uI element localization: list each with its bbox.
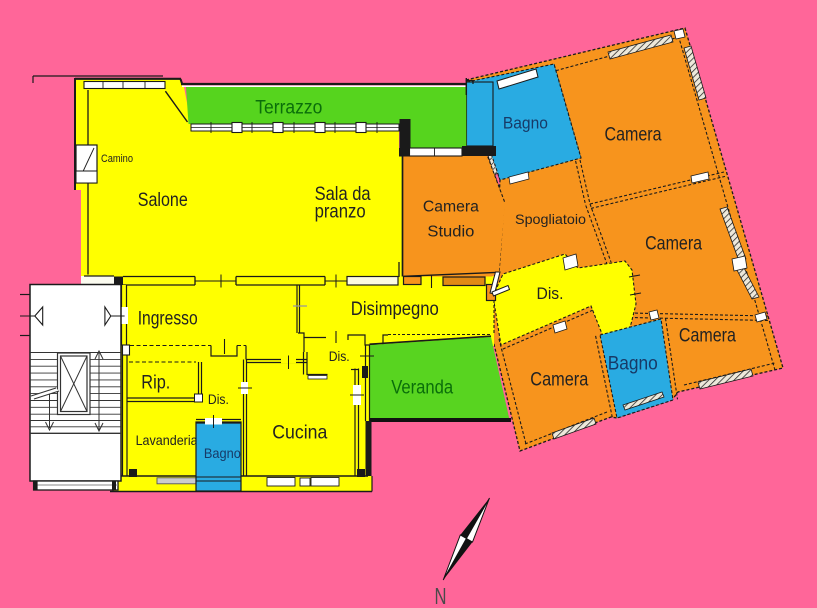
svg-text:Camera: Camera [605,125,662,146]
svg-text:Terrazzo: Terrazzo [255,97,322,119]
svg-text:Bagno: Bagno [503,115,548,133]
svg-text:Camera: Camera [530,370,588,391]
svg-text:Dis.: Dis. [208,392,229,407]
svg-text:Ingresso: Ingresso [138,309,198,330]
svg-text:Bagno: Bagno [204,445,241,461]
svg-text:Camera: Camera [645,234,702,255]
svg-text:Dis.: Dis. [329,349,350,364]
svg-text:Camera: Camera [679,326,736,347]
svg-text:Salone: Salone [138,190,188,211]
svg-text:Camera: Camera [423,199,479,216]
svg-text:N: N [435,583,447,608]
svg-text:Dis.: Dis. [537,284,564,303]
svg-text:Camino: Camino [101,153,133,165]
svg-text:Bagno: Bagno [608,354,658,375]
svg-text:Rip.: Rip. [141,373,170,394]
svg-text:Veranda: Veranda [391,376,453,398]
svg-text:pranzo: pranzo [315,202,366,223]
svg-text:Cucina: Cucina [272,423,327,444]
svg-text:Studio: Studio [427,224,474,241]
svg-text:Disimpegno: Disimpegno [351,299,439,320]
svg-text:Lavanderia: Lavanderia [136,432,198,448]
svg-text:Spogliatoio: Spogliatoio [515,211,586,227]
